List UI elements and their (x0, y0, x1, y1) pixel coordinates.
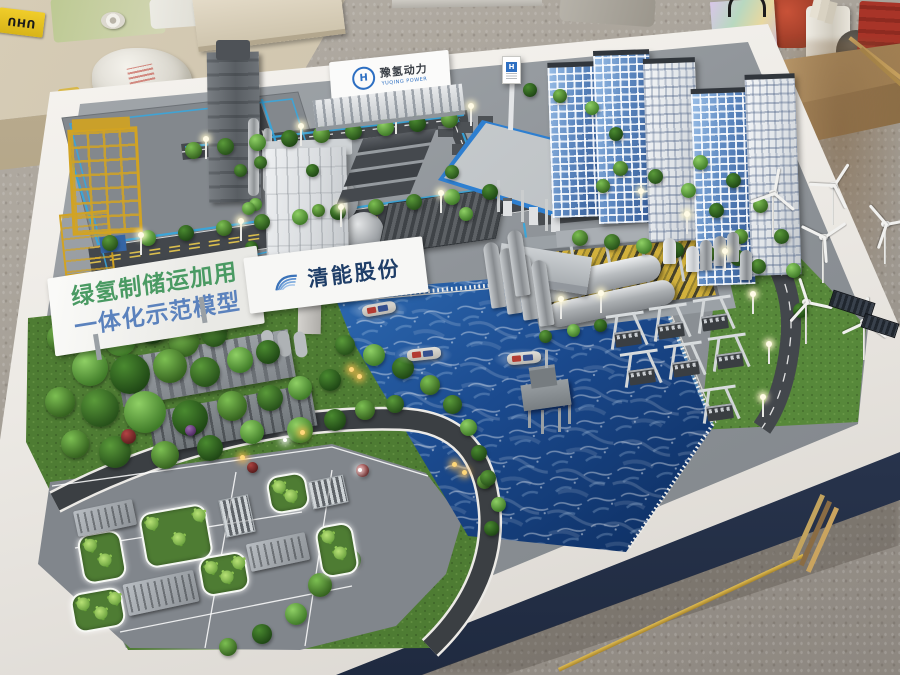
vertical-tank (727, 232, 739, 262)
street-lamp (560, 300, 562, 319)
tree (319, 369, 341, 391)
globe-lamp (300, 430, 305, 435)
tree (480, 470, 496, 486)
tree (254, 156, 267, 169)
tree (459, 207, 473, 221)
tree (709, 203, 724, 218)
palm-plant (192, 508, 207, 523)
tree (256, 340, 280, 364)
street-lamp (205, 140, 207, 159)
street-lamp (300, 127, 302, 146)
street-lamp (440, 194, 442, 213)
tree (786, 263, 801, 278)
tree (484, 521, 499, 536)
tree (355, 400, 375, 420)
gantry-frame (706, 333, 752, 373)
wind-turbine-blade (869, 204, 889, 226)
vertical-tank (700, 240, 712, 270)
palm-plant (94, 605, 109, 620)
gantry-frame (618, 349, 664, 389)
tree (312, 204, 325, 217)
tree (491, 497, 506, 512)
plaza-planter (69, 586, 127, 634)
tree (539, 330, 552, 343)
gate-logo-circle: H (351, 65, 375, 90)
gantry-frame (604, 311, 650, 351)
palm-plant (107, 591, 122, 606)
tree (553, 89, 567, 103)
tree (72, 350, 108, 386)
tree (406, 194, 422, 210)
tree (445, 165, 459, 179)
tree (81, 389, 119, 427)
tree (751, 259, 766, 274)
tree (443, 395, 462, 414)
street-lamp (240, 222, 242, 241)
flower-bush (121, 429, 136, 444)
palm-plant (284, 488, 299, 503)
plaza-planter (76, 529, 128, 586)
tree (681, 183, 696, 198)
tree (648, 169, 663, 184)
palm-plant (144, 516, 159, 531)
tree (124, 391, 166, 433)
tree (386, 395, 404, 413)
gantry-frame (696, 385, 742, 425)
garden-light (283, 438, 287, 442)
street-lamp (752, 295, 754, 314)
tree (523, 83, 537, 97)
palm-plant (98, 552, 113, 567)
tree (460, 419, 477, 436)
tree (219, 638, 237, 656)
park-pergola (218, 494, 255, 537)
flower-bush (247, 462, 258, 473)
street-lamp (600, 294, 602, 313)
tree (368, 199, 384, 215)
tree (227, 347, 253, 373)
tree (217, 138, 234, 155)
tree (234, 164, 247, 177)
tree (178, 225, 194, 241)
flower-bush (185, 425, 196, 436)
tree (281, 130, 298, 147)
tree (306, 164, 319, 177)
globe-lamp (452, 462, 457, 467)
palm-plant (321, 529, 336, 544)
tree (636, 238, 652, 254)
globe-lamp (349, 367, 354, 372)
tree (153, 349, 187, 383)
plaza-planter (265, 471, 311, 515)
tree (288, 376, 312, 400)
wind-turbine-blade (823, 235, 828, 262)
globe-lamp (462, 470, 467, 475)
tree (604, 234, 620, 250)
tree (249, 134, 266, 151)
globe-lamp (240, 455, 245, 460)
gantry-frame (647, 303, 693, 343)
tree (257, 385, 283, 411)
tree (596, 179, 610, 193)
street-lamp (768, 345, 770, 364)
tree (444, 189, 460, 205)
tree (252, 624, 272, 644)
palm-plant (333, 545, 348, 560)
street-lamp (724, 252, 726, 271)
white-tank (686, 246, 699, 272)
tree (151, 441, 179, 469)
palm-plant (220, 569, 235, 584)
billboard-logo (269, 264, 302, 297)
tree (363, 344, 385, 366)
tree (774, 229, 789, 244)
tree (726, 173, 741, 188)
tree (420, 375, 440, 395)
tree (292, 209, 308, 225)
globe-lamp (357, 374, 362, 379)
tree (110, 354, 150, 394)
tree (61, 430, 89, 458)
tree (190, 357, 220, 387)
street-lamp (686, 215, 688, 234)
street-lamp (140, 236, 142, 255)
street-lamp (640, 192, 642, 211)
tree (335, 335, 355, 355)
tree (613, 161, 628, 176)
white-tank (663, 238, 676, 264)
tree (471, 445, 487, 461)
tree (254, 214, 270, 230)
billboard-text: 清能股份 (306, 252, 403, 293)
palm-plant (83, 538, 98, 553)
tree (585, 101, 599, 115)
park-pavilion (73, 499, 137, 537)
tree (609, 127, 623, 141)
garden-light (358, 468, 362, 472)
wind-turbine-pole (805, 302, 808, 344)
palm-plant (172, 531, 187, 546)
wind-turbine-pole (832, 185, 835, 225)
palm-plant (231, 555, 246, 570)
park-pergola (307, 475, 348, 510)
palm-plant (76, 596, 91, 611)
tree (572, 230, 588, 246)
wind-turbine-pole (772, 193, 775, 237)
tree (693, 155, 708, 170)
tree (285, 603, 307, 625)
tree (567, 324, 580, 337)
street-lamp (340, 208, 342, 227)
tree (240, 420, 264, 444)
gantry-frame (662, 341, 708, 381)
palm-plant (204, 560, 219, 575)
tree (197, 435, 223, 461)
plaza-planter (314, 521, 360, 579)
park-pavilion (122, 570, 199, 616)
gantry-frame (691, 295, 737, 335)
plaza-planter (197, 550, 251, 598)
workshop-photo: UHU (0, 0, 900, 675)
vertical-tank (740, 250, 752, 280)
tree (185, 142, 202, 159)
tree (242, 202, 255, 215)
tree (217, 391, 247, 421)
tree (324, 409, 346, 431)
tree (482, 184, 498, 200)
tree (102, 235, 118, 251)
tree (216, 220, 232, 236)
street-lamp (762, 398, 764, 417)
street-lamp (470, 107, 472, 126)
wind-turbine-blade (801, 224, 827, 239)
gate-logo-letter: H (359, 72, 368, 84)
park-pavilion (246, 532, 311, 572)
tree (45, 387, 75, 417)
